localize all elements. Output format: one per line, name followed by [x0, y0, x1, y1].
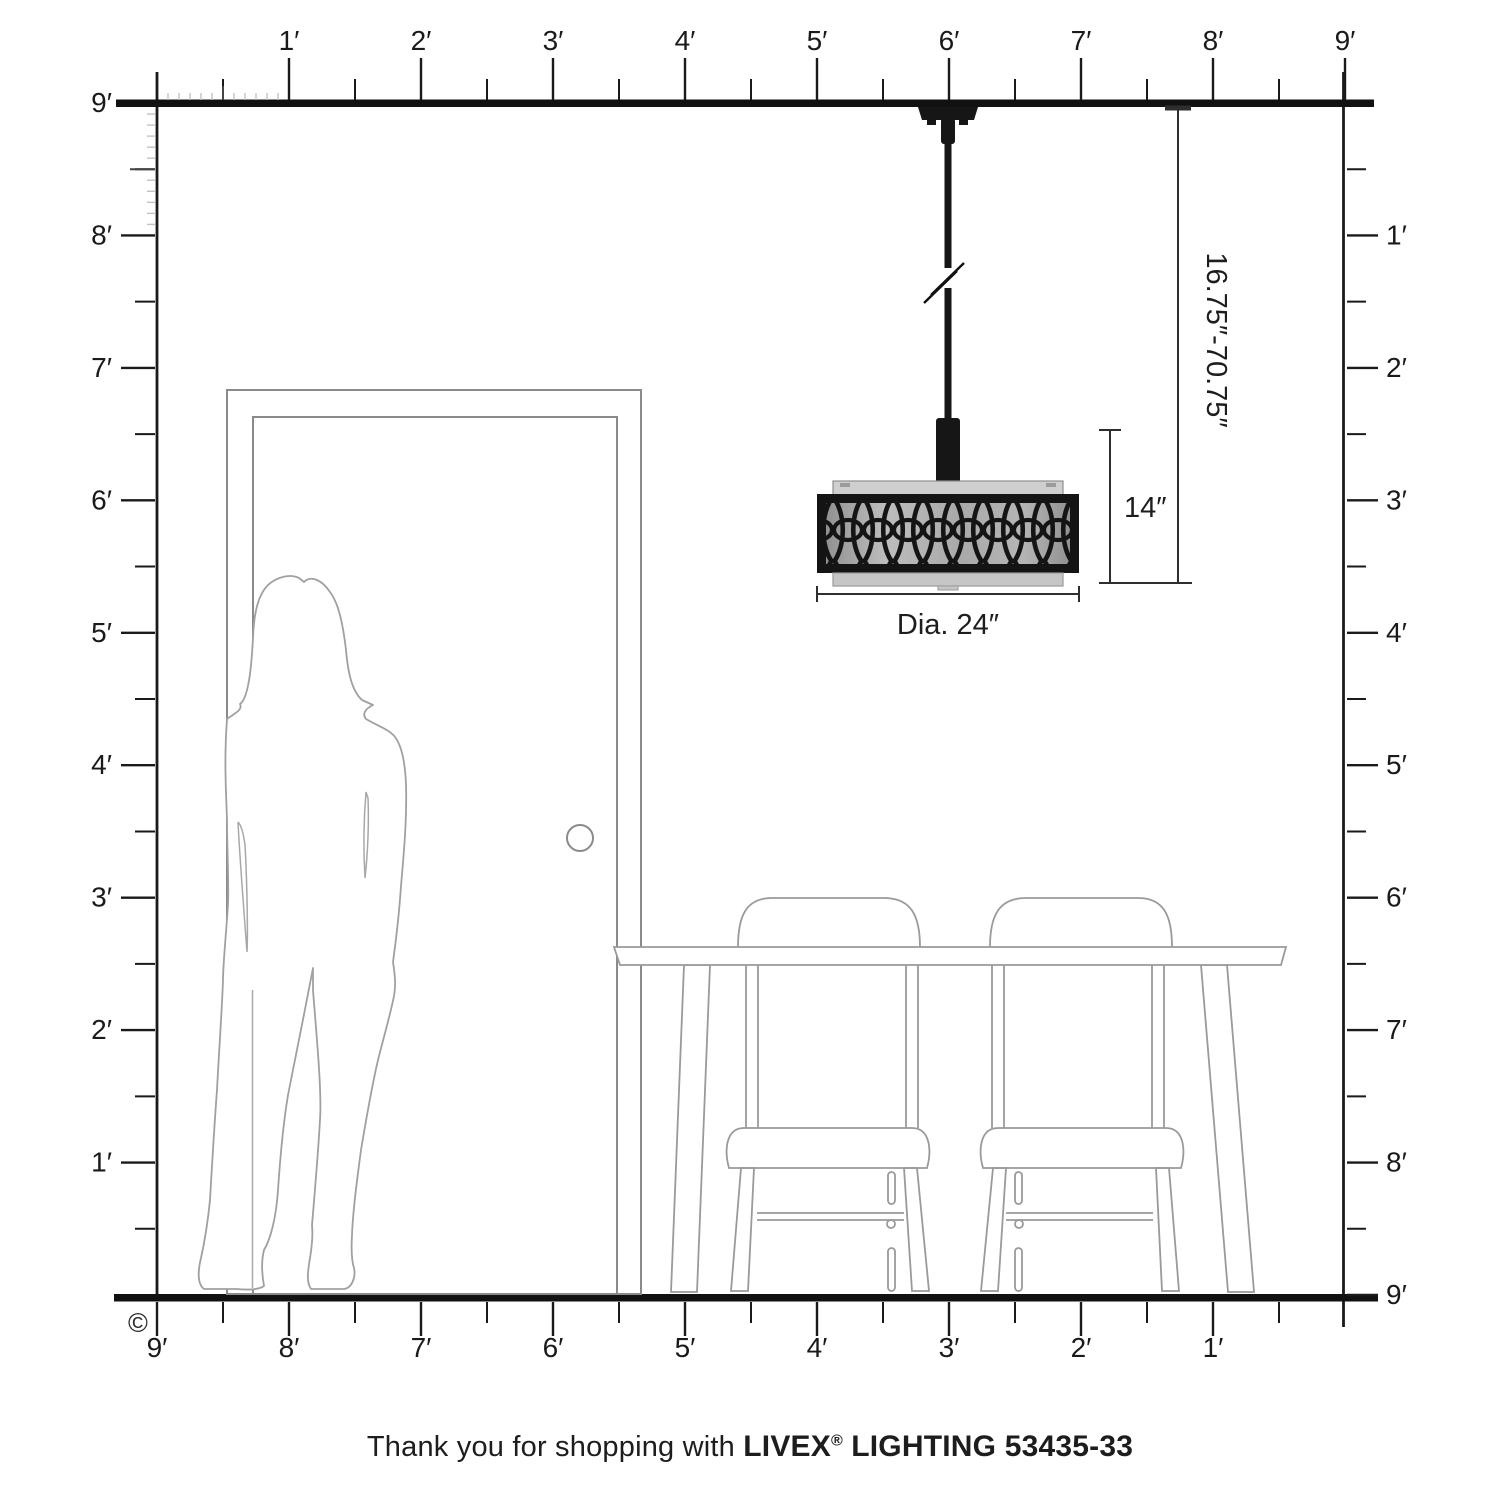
chair-backrest: [738, 898, 920, 947]
table-leg-left: [671, 965, 710, 1292]
rod-break-mark: [924, 271, 957, 303]
shade-rim-top: [817, 494, 1079, 503]
copyright-symbol: ©: [128, 1308, 148, 1338]
ruler-label: 4′: [1386, 617, 1407, 648]
chair-seat: [727, 1128, 930, 1168]
caption-model: LIGHTING 53435-33: [851, 1430, 1133, 1463]
ruler-label: 6′: [543, 1332, 564, 1363]
ruler-label: 7′: [1071, 25, 1092, 56]
ruler-label: 3′: [939, 1332, 960, 1363]
ruler-label: 9′: [91, 87, 112, 118]
floor-line: [114, 1294, 1378, 1302]
ruler-label: 5′: [91, 617, 112, 648]
registered-mark: ®: [831, 1432, 843, 1449]
brand-name: LIVEX: [743, 1430, 831, 1463]
diameter-label: Dia. 24″: [897, 609, 999, 641]
ruler-label: 7′: [1386, 1014, 1407, 1045]
height-range-label: 16.75″-70.75″: [1200, 252, 1232, 427]
chair-joint-hole: [887, 1220, 895, 1228]
chair-far-leg: [888, 1248, 895, 1291]
ruler-label: 5′: [675, 1332, 696, 1363]
downrod-lower: [945, 288, 952, 420]
pendant-fixture: [817, 107, 1079, 590]
canopy-tab: [927, 120, 936, 125]
ruler-label: 2′: [411, 25, 432, 56]
table-top: [614, 947, 1286, 965]
scale-diagram: 1′2′3′4′5′6′7′8′9′9′8′7′6′5′4′3′2′1′1′2′…: [0, 0, 1500, 1500]
downrod-upper: [945, 140, 952, 268]
ruler-label: 6′: [91, 484, 112, 515]
ruler-label: 5′: [1386, 749, 1407, 780]
ruler-label: 8′: [1203, 25, 1224, 56]
ruler-label: 4′: [807, 1332, 828, 1363]
ruler-label: 8′: [91, 219, 112, 250]
shade-clip: [840, 483, 850, 487]
fixture-height-label: 14″: [1124, 492, 1167, 524]
ruler-label: 3′: [543, 25, 564, 56]
ruler-label: 1′: [279, 25, 300, 56]
ruler-label: 8′: [1386, 1147, 1407, 1178]
ruler-label: 4′: [675, 25, 696, 56]
chair-far-leg: [888, 1172, 895, 1204]
ruler-label: 3′: [1386, 484, 1407, 515]
ruler-label: 1′: [1203, 1332, 1224, 1363]
ruler-label: 2′: [1386, 352, 1407, 383]
ruler-label: 3′: [91, 882, 112, 913]
shade-bottom-diffuser: [833, 573, 1063, 586]
shade-rim-bottom: [817, 564, 1079, 573]
ruler-label: 9′: [1386, 1279, 1407, 1310]
shade-clip: [1046, 483, 1056, 487]
shade-edge-right: [1070, 494, 1079, 573]
ruler-label: 7′: [91, 352, 112, 383]
ruler-label: 9′: [1335, 25, 1356, 56]
shade-bottom-tab: [938, 586, 958, 590]
ruler-label: 7′: [411, 1332, 432, 1363]
table-leg-right: [1201, 965, 1254, 1292]
ruler-label: 2′: [91, 1014, 112, 1045]
ruler-label: 1′: [91, 1147, 112, 1178]
caption-prefix: Thank you for shopping with: [367, 1431, 735, 1463]
ruler-label: 5′: [807, 25, 828, 56]
ruler-label: 1′: [1386, 219, 1407, 250]
ruler-label: 8′: [279, 1332, 300, 1363]
shade-edge-left: [817, 494, 826, 573]
ruler-label: 6′: [939, 25, 960, 56]
ruler-label: 2′: [1071, 1332, 1092, 1363]
door-knob: [567, 825, 593, 851]
dining-table: [614, 947, 1286, 1292]
chair-rear-leg: [904, 1168, 929, 1291]
ruler-label: 6′: [1386, 882, 1407, 913]
caption: Thank you for shopping with LIVEX® LIGHT…: [0, 1430, 1500, 1464]
stem-lower: [936, 418, 960, 488]
ruler-label: 9′: [147, 1332, 168, 1363]
chair-front-leg: [731, 1168, 754, 1291]
ruler-label: 4′: [91, 749, 112, 780]
canopy-tab: [959, 120, 968, 125]
shade-lattice-band: [823, 499, 1073, 567]
